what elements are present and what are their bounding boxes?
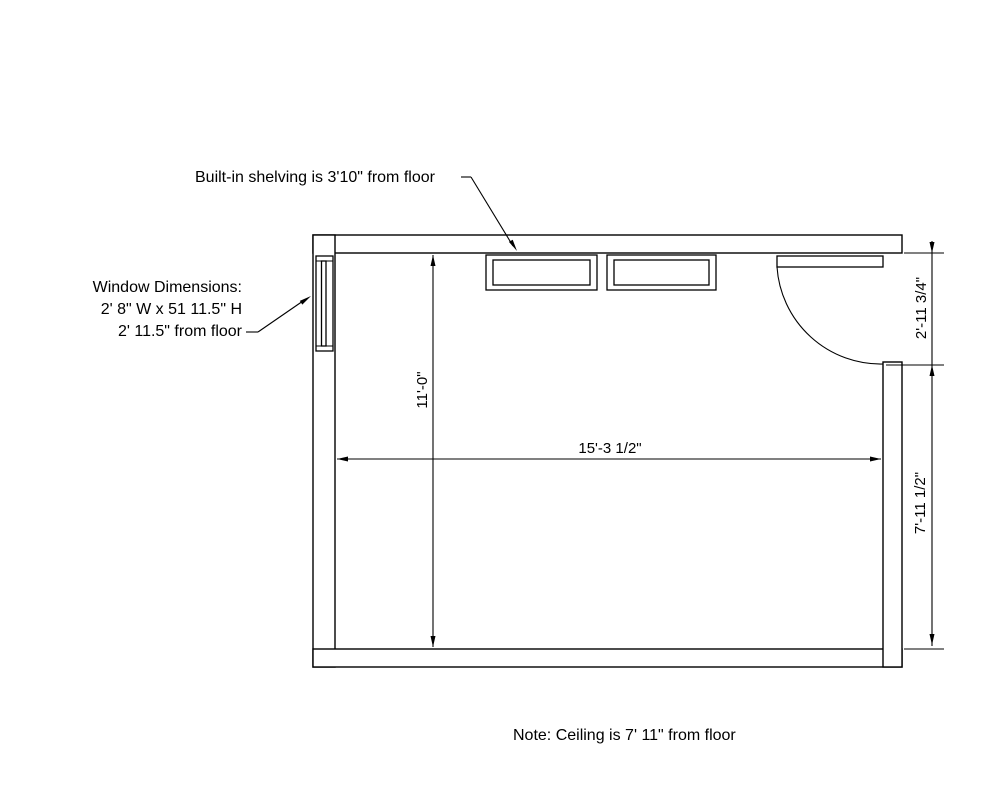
dimension-room-depth: 11'-0"	[414, 255, 436, 647]
door-leaf	[777, 256, 883, 267]
dimension-label-room-depth: 11'-0"	[414, 371, 431, 408]
shelving-note-text: Built-in shelving is 3'10" from floor	[195, 169, 436, 186]
dimension-label-right-wall-segment: 7'-11 1/2"	[912, 472, 929, 534]
right-wall	[883, 362, 902, 667]
window-glazing	[322, 261, 327, 346]
arrow-up-icon	[930, 365, 935, 376]
arrow-up-icon	[431, 255, 436, 266]
top-wall	[313, 235, 902, 253]
door	[777, 256, 883, 364]
shelf-left-inner	[493, 260, 590, 285]
arrow-down-icon	[930, 242, 935, 253]
window-note-line1: Window Dimensions:	[93, 279, 242, 296]
leader-line	[258, 301, 303, 332]
floor-plan-canvas: 11'-0" 15'-3 1/2" 2'-11 3/4" 7'-11 1/2"	[0, 0, 984, 789]
window-note-text: Window Dimensions: 2' 8" W x 51 11.5" H …	[93, 279, 243, 340]
window	[316, 256, 333, 351]
dimension-label-room-width: 15'-3 1/2"	[578, 440, 641, 457]
shelf-right-inner	[614, 260, 709, 285]
dimension-label-door-opening: 2'-11 3/4"	[913, 277, 930, 339]
arrow-down-icon	[431, 636, 436, 647]
dimension-room-width: 15'-3 1/2"	[337, 440, 881, 462]
arrow-left-icon	[337, 457, 348, 462]
floor-plan-drawing: 11'-0" 15'-3 1/2" 2'-11 3/4" 7'-11 1/2"	[0, 0, 984, 789]
leader-arrow-icon	[300, 296, 311, 305]
arrow-right-icon	[870, 457, 881, 462]
shelving-units	[486, 255, 716, 290]
arrow-down-icon	[930, 634, 935, 645]
door-swing-arc	[777, 267, 883, 364]
bottom-wall	[313, 649, 902, 667]
window-note-line3: 2' 11.5" from floor	[118, 323, 243, 340]
ceiling-note-text: Note: Ceiling is 7' 11" from floor	[513, 727, 736, 744]
window-leader	[246, 296, 311, 332]
window-note-line2: 2' 8" W x 51 11.5" H	[101, 301, 242, 318]
